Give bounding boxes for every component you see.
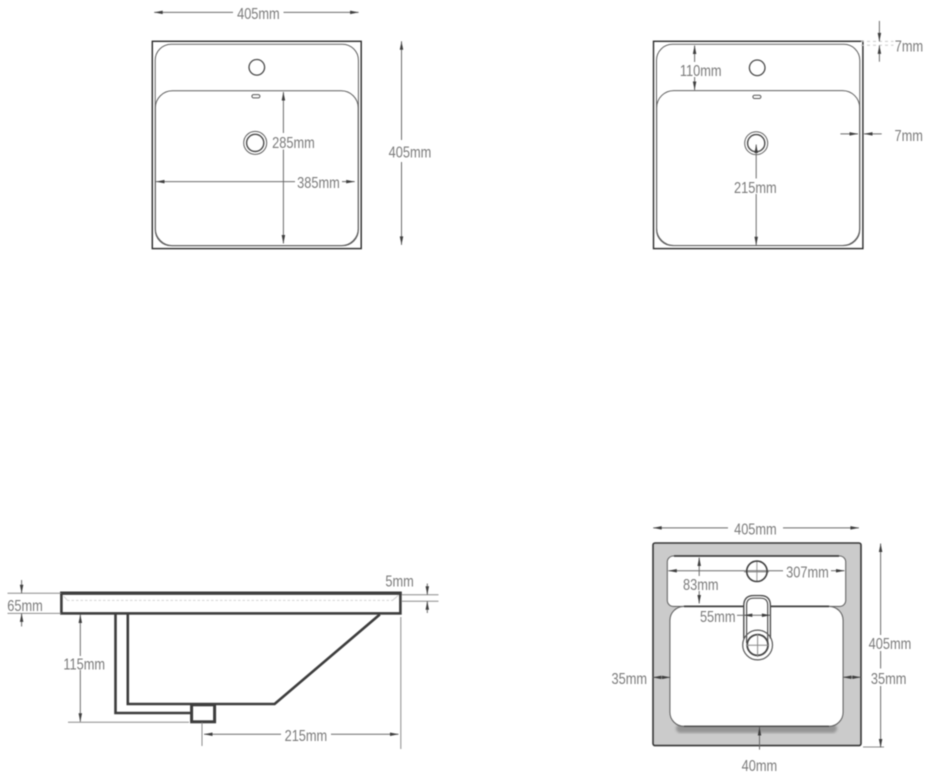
svg-text:285mm: 285mm bbox=[272, 135, 315, 153]
svg-text:110mm: 110mm bbox=[680, 63, 722, 81]
svg-text:385mm: 385mm bbox=[297, 175, 340, 193]
svg-text:83mm: 83mm bbox=[683, 577, 719, 595]
svg-text:405mm: 405mm bbox=[734, 521, 777, 539]
svg-text:115mm: 115mm bbox=[63, 656, 105, 674]
svg-text:7mm: 7mm bbox=[894, 128, 922, 146]
svg-text:55mm: 55mm bbox=[700, 609, 736, 627]
svg-text:35mm: 35mm bbox=[871, 671, 907, 689]
svg-text:215mm: 215mm bbox=[734, 180, 777, 198]
svg-text:215mm: 215mm bbox=[285, 728, 328, 746]
svg-text:307mm: 307mm bbox=[786, 564, 829, 582]
svg-text:5mm: 5mm bbox=[385, 573, 413, 591]
svg-text:405mm: 405mm bbox=[389, 144, 432, 162]
svg-text:7mm: 7mm bbox=[895, 38, 923, 56]
svg-text:65mm: 65mm bbox=[7, 598, 43, 616]
svg-text:35mm: 35mm bbox=[612, 671, 648, 689]
svg-text:40mm: 40mm bbox=[742, 758, 778, 776]
svg-text:405mm: 405mm bbox=[869, 636, 912, 654]
svg-text:405mm: 405mm bbox=[237, 6, 280, 24]
